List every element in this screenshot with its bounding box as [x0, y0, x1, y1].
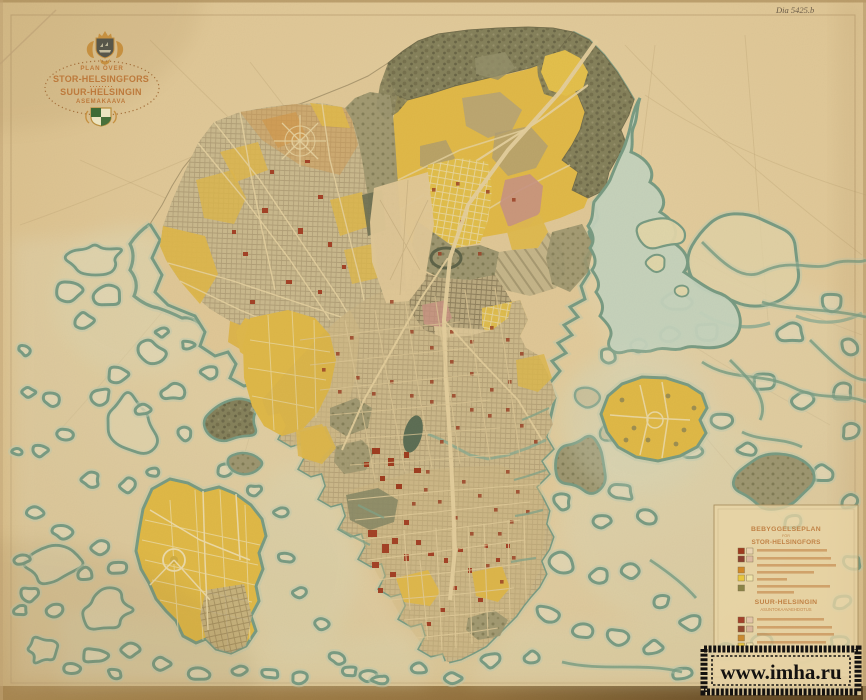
svg-text:www.imha.ru: www.imha.ru — [720, 660, 842, 684]
svg-text:STOR-HELSINGFORS: STOR-HELSINGFORS — [751, 539, 821, 546]
svg-text:BEBYGGELSEPLAN: BEBYGGELSEPLAN — [751, 526, 821, 533]
svg-text:STOR-HELSINGFORS: STOR-HELSINGFORS — [53, 74, 149, 84]
svg-text:SUUR-HELSINGIN: SUUR-HELSINGIN — [60, 87, 142, 97]
svg-text:ASEMAKAAVA: ASEMAKAAVA — [76, 99, 126, 105]
svg-text:ASUNTOKAAVAEHDOTUS: ASUNTOKAAVAEHDOTUS — [760, 607, 811, 612]
svg-text:PLAN ÖVER: PLAN ÖVER — [80, 65, 123, 72]
svg-text:SUUR-HELSINGIN: SUUR-HELSINGIN — [755, 599, 818, 606]
svg-text:Dia 5425.b: Dia 5425.b — [775, 5, 814, 15]
svg-text:FÖR: FÖR — [782, 534, 790, 538]
